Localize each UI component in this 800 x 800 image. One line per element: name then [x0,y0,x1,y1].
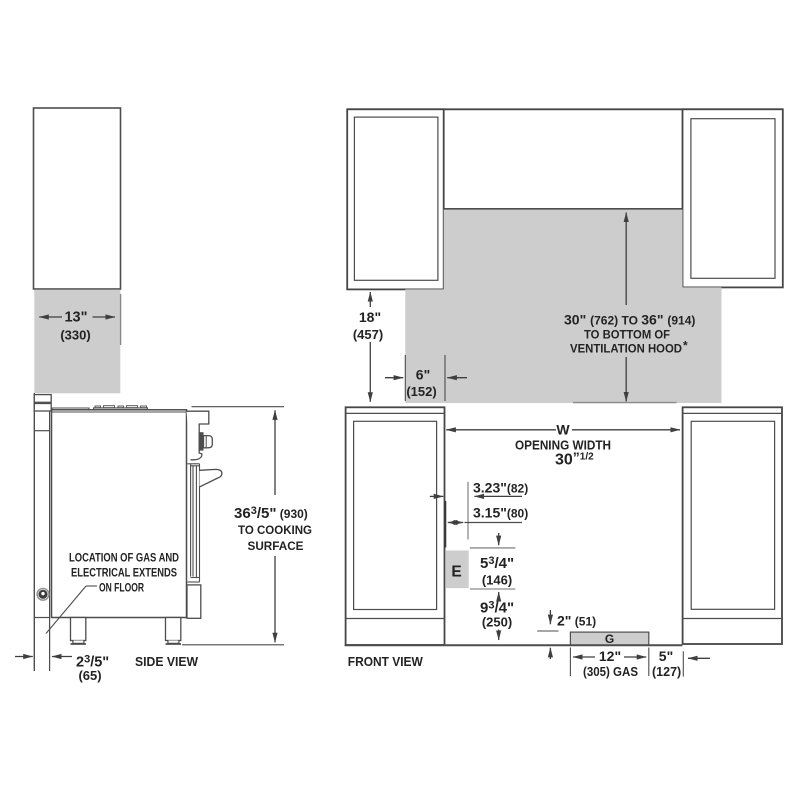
svg-text:*: * [683,339,688,353]
svg-text:30" (762) TO 36" (914): 30" (762) TO 36" (914) [564,312,695,328]
svg-text:(305) GAS: (305) GAS [583,665,638,679]
svg-text:3.23"(82): 3.23"(82) [473,480,528,496]
svg-text:363/5" (930): 363/5" (930) [234,505,308,522]
svg-text:53/4": 53/4" [480,555,514,572]
svg-text:(65): (65) [78,668,101,683]
svg-text:VENTILATION HOOD: VENTILATION HOOD [570,342,682,356]
svg-text:TO BOTTOM OF: TO BOTTOM OF [584,328,670,342]
svg-text:5": 5" [659,648,673,664]
svg-text:12": 12" [599,648,621,664]
svg-text:(127): (127) [652,665,681,679]
svg-text:E: E [451,564,461,581]
svg-text:2" (51): 2" (51) [557,613,596,629]
svg-text:6": 6" [416,367,430,383]
svg-text:13": 13" [64,310,87,326]
svg-text:ON FLOOR: ON FLOOR [99,583,145,595]
svg-text:3.15"(80): 3.15"(80) [473,505,528,521]
svg-text:30”1/2: 30”1/2 [555,449,594,469]
svg-text:(250): (250) [482,615,512,630]
svg-text:SURFACE: SURFACE [248,539,304,553]
svg-text:OPENING WIDTH: OPENING WIDTH [515,439,611,453]
svg-text:FRONT VIEW: FRONT VIEW [348,655,423,669]
svg-text:(146): (146) [482,573,512,588]
svg-text:SIDE VIEW: SIDE VIEW [135,655,198,669]
svg-text:TO COOKING: TO COOKING [238,523,312,537]
svg-text:G: G [605,632,614,646]
svg-text:(457): (457) [353,327,383,342]
svg-text:(152): (152) [406,384,436,399]
svg-text:ELECTRICAL EXTENDS: ELECTRICAL EXTENDS [71,568,177,580]
svg-text:18": 18" [359,309,381,325]
svg-text:LOCATION OF GAS AND: LOCATION OF GAS AND [69,553,179,565]
svg-text:(330): (330) [60,328,90,343]
svg-text:W: W [556,422,570,438]
